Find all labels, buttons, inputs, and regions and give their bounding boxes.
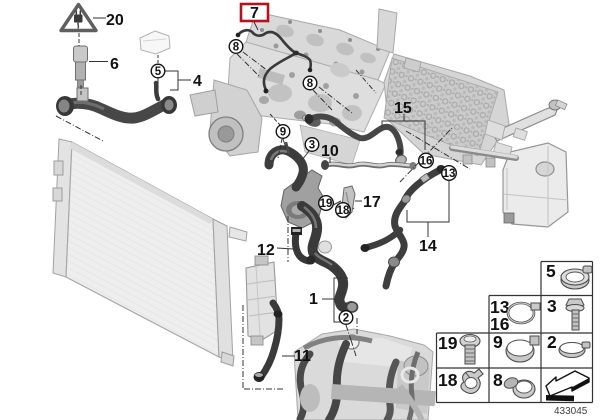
svg-text:15: 15 [394,100,412,117]
svg-text:5: 5 [546,261,556,281]
svg-text:9: 9 [280,127,286,139]
svg-text:2: 2 [547,332,557,352]
svg-text:16: 16 [490,314,510,334]
svg-text:14: 14 [419,238,437,255]
svg-text:19: 19 [320,198,333,210]
svg-text:2: 2 [343,313,349,325]
svg-text:10: 10 [321,143,339,160]
svg-text:433045: 433045 [554,406,588,417]
svg-text:11: 11 [294,348,311,365]
svg-text:18: 18 [337,205,350,217]
svg-text:18: 18 [438,370,458,390]
svg-text:7: 7 [250,5,259,22]
svg-text:6: 6 [110,56,119,73]
svg-text:12: 12 [257,242,275,259]
svg-text:3: 3 [547,296,557,316]
svg-text:8: 8 [493,370,503,390]
svg-text:20: 20 [106,12,124,29]
svg-text:3: 3 [309,140,315,152]
svg-text:5: 5 [155,66,162,78]
svg-text:9: 9 [493,332,503,352]
svg-text:13: 13 [443,168,456,180]
svg-text:4: 4 [193,73,202,90]
svg-text:8: 8 [307,78,314,90]
svg-text:19: 19 [438,333,458,353]
svg-text:16: 16 [420,156,433,168]
svg-text:17: 17 [363,194,381,211]
svg-text:1: 1 [309,291,318,308]
svg-text:8: 8 [233,42,240,54]
